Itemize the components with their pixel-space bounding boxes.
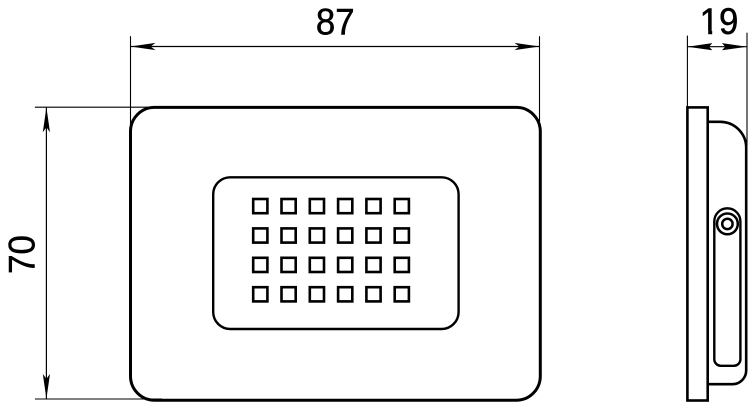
svg-text:70: 70 xyxy=(1,235,42,274)
svg-text:19: 19 xyxy=(700,1,739,42)
svg-text:87: 87 xyxy=(316,1,355,42)
